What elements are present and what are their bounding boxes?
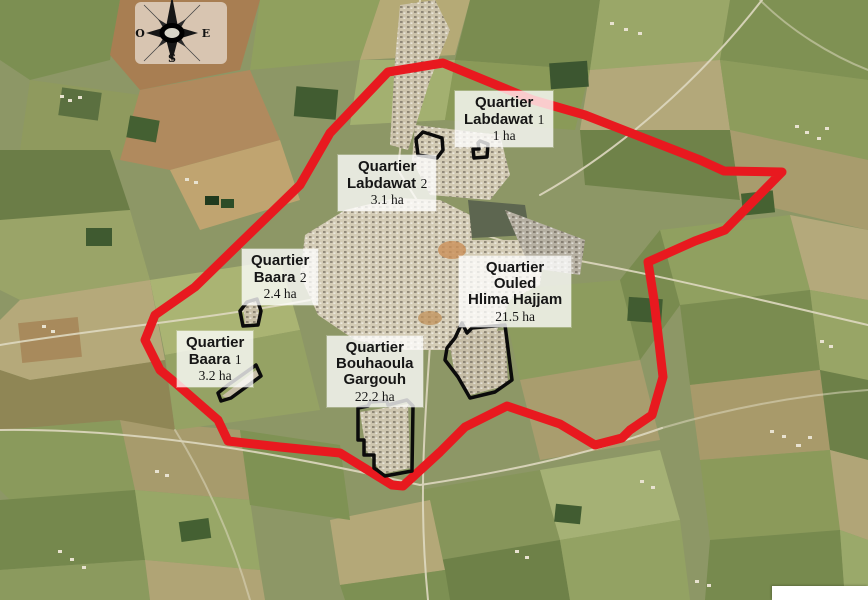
quarter-label-baara-2: Quartier Baara 2 2.4 ha (242, 249, 318, 305)
quarter-index: 2 (421, 176, 428, 191)
quarter-title: Quartier (347, 159, 427, 175)
quarter-index: 2 (300, 270, 307, 285)
quarter-name: Labdawat (464, 111, 533, 128)
quarter-name-line-2: Gargouh (336, 372, 414, 388)
quarter-title: Quartier (336, 340, 414, 356)
quarter-label-baara-1: Quartier Baara 1 3.2 ha (177, 331, 253, 387)
quarter-label-labdawat-1: Quartier Labdawat 1 1 ha (455, 91, 553, 147)
compass-south-label: S (168, 52, 176, 65)
quarter-name: Labdawat (347, 175, 416, 192)
quarter-title: Quartier (468, 260, 562, 276)
quarter-name-line-1: Ouled (468, 276, 562, 292)
quarter-index: 1 (235, 352, 242, 367)
quarter-title: Quartier (251, 253, 309, 269)
quarter-label-ouled-hlima-hajjam: Quartier Ouled Hlima Hajjam 21.5 ha (459, 256, 571, 327)
quarter-index: 1 (538, 112, 545, 127)
quarter-area: 21.5 ha (468, 310, 562, 325)
quarter-name-line-1: Bouhaoula (336, 356, 414, 372)
map-figure: O E S Quartier Labdawat 1 1 ha Quartier … (0, 0, 868, 600)
quarter-name: Baara (189, 351, 231, 368)
quarter-area: 3.1 ha (347, 193, 427, 208)
quarter-area: 3.2 ha (186, 369, 244, 384)
quarter-name: Baara (254, 269, 296, 286)
quarter-area: 1 ha (464, 129, 544, 144)
quarter-title: Quartier (464, 95, 544, 111)
quarter-area: 2.4 ha (251, 287, 309, 302)
compass-west-label: O (135, 27, 145, 40)
quarter-label-labdawat-2: Quartier Labdawat 2 3.1 ha (338, 155, 436, 211)
satellite-terrain (0, 0, 868, 600)
quarter-title: Quartier (186, 335, 244, 351)
compass-east-label: E (202, 27, 210, 40)
quarter-label-bouhaoula-gargouh: Quartier Bouhaoula Gargouh 22.2 ha (327, 336, 423, 407)
compass-rose-icon: O E S (132, 0, 232, 70)
quarter-name-line-2: Hlima Hajjam (468, 292, 562, 308)
quarter-area: 22.2 ha (336, 390, 414, 405)
legend-cutoff-box (772, 586, 868, 600)
